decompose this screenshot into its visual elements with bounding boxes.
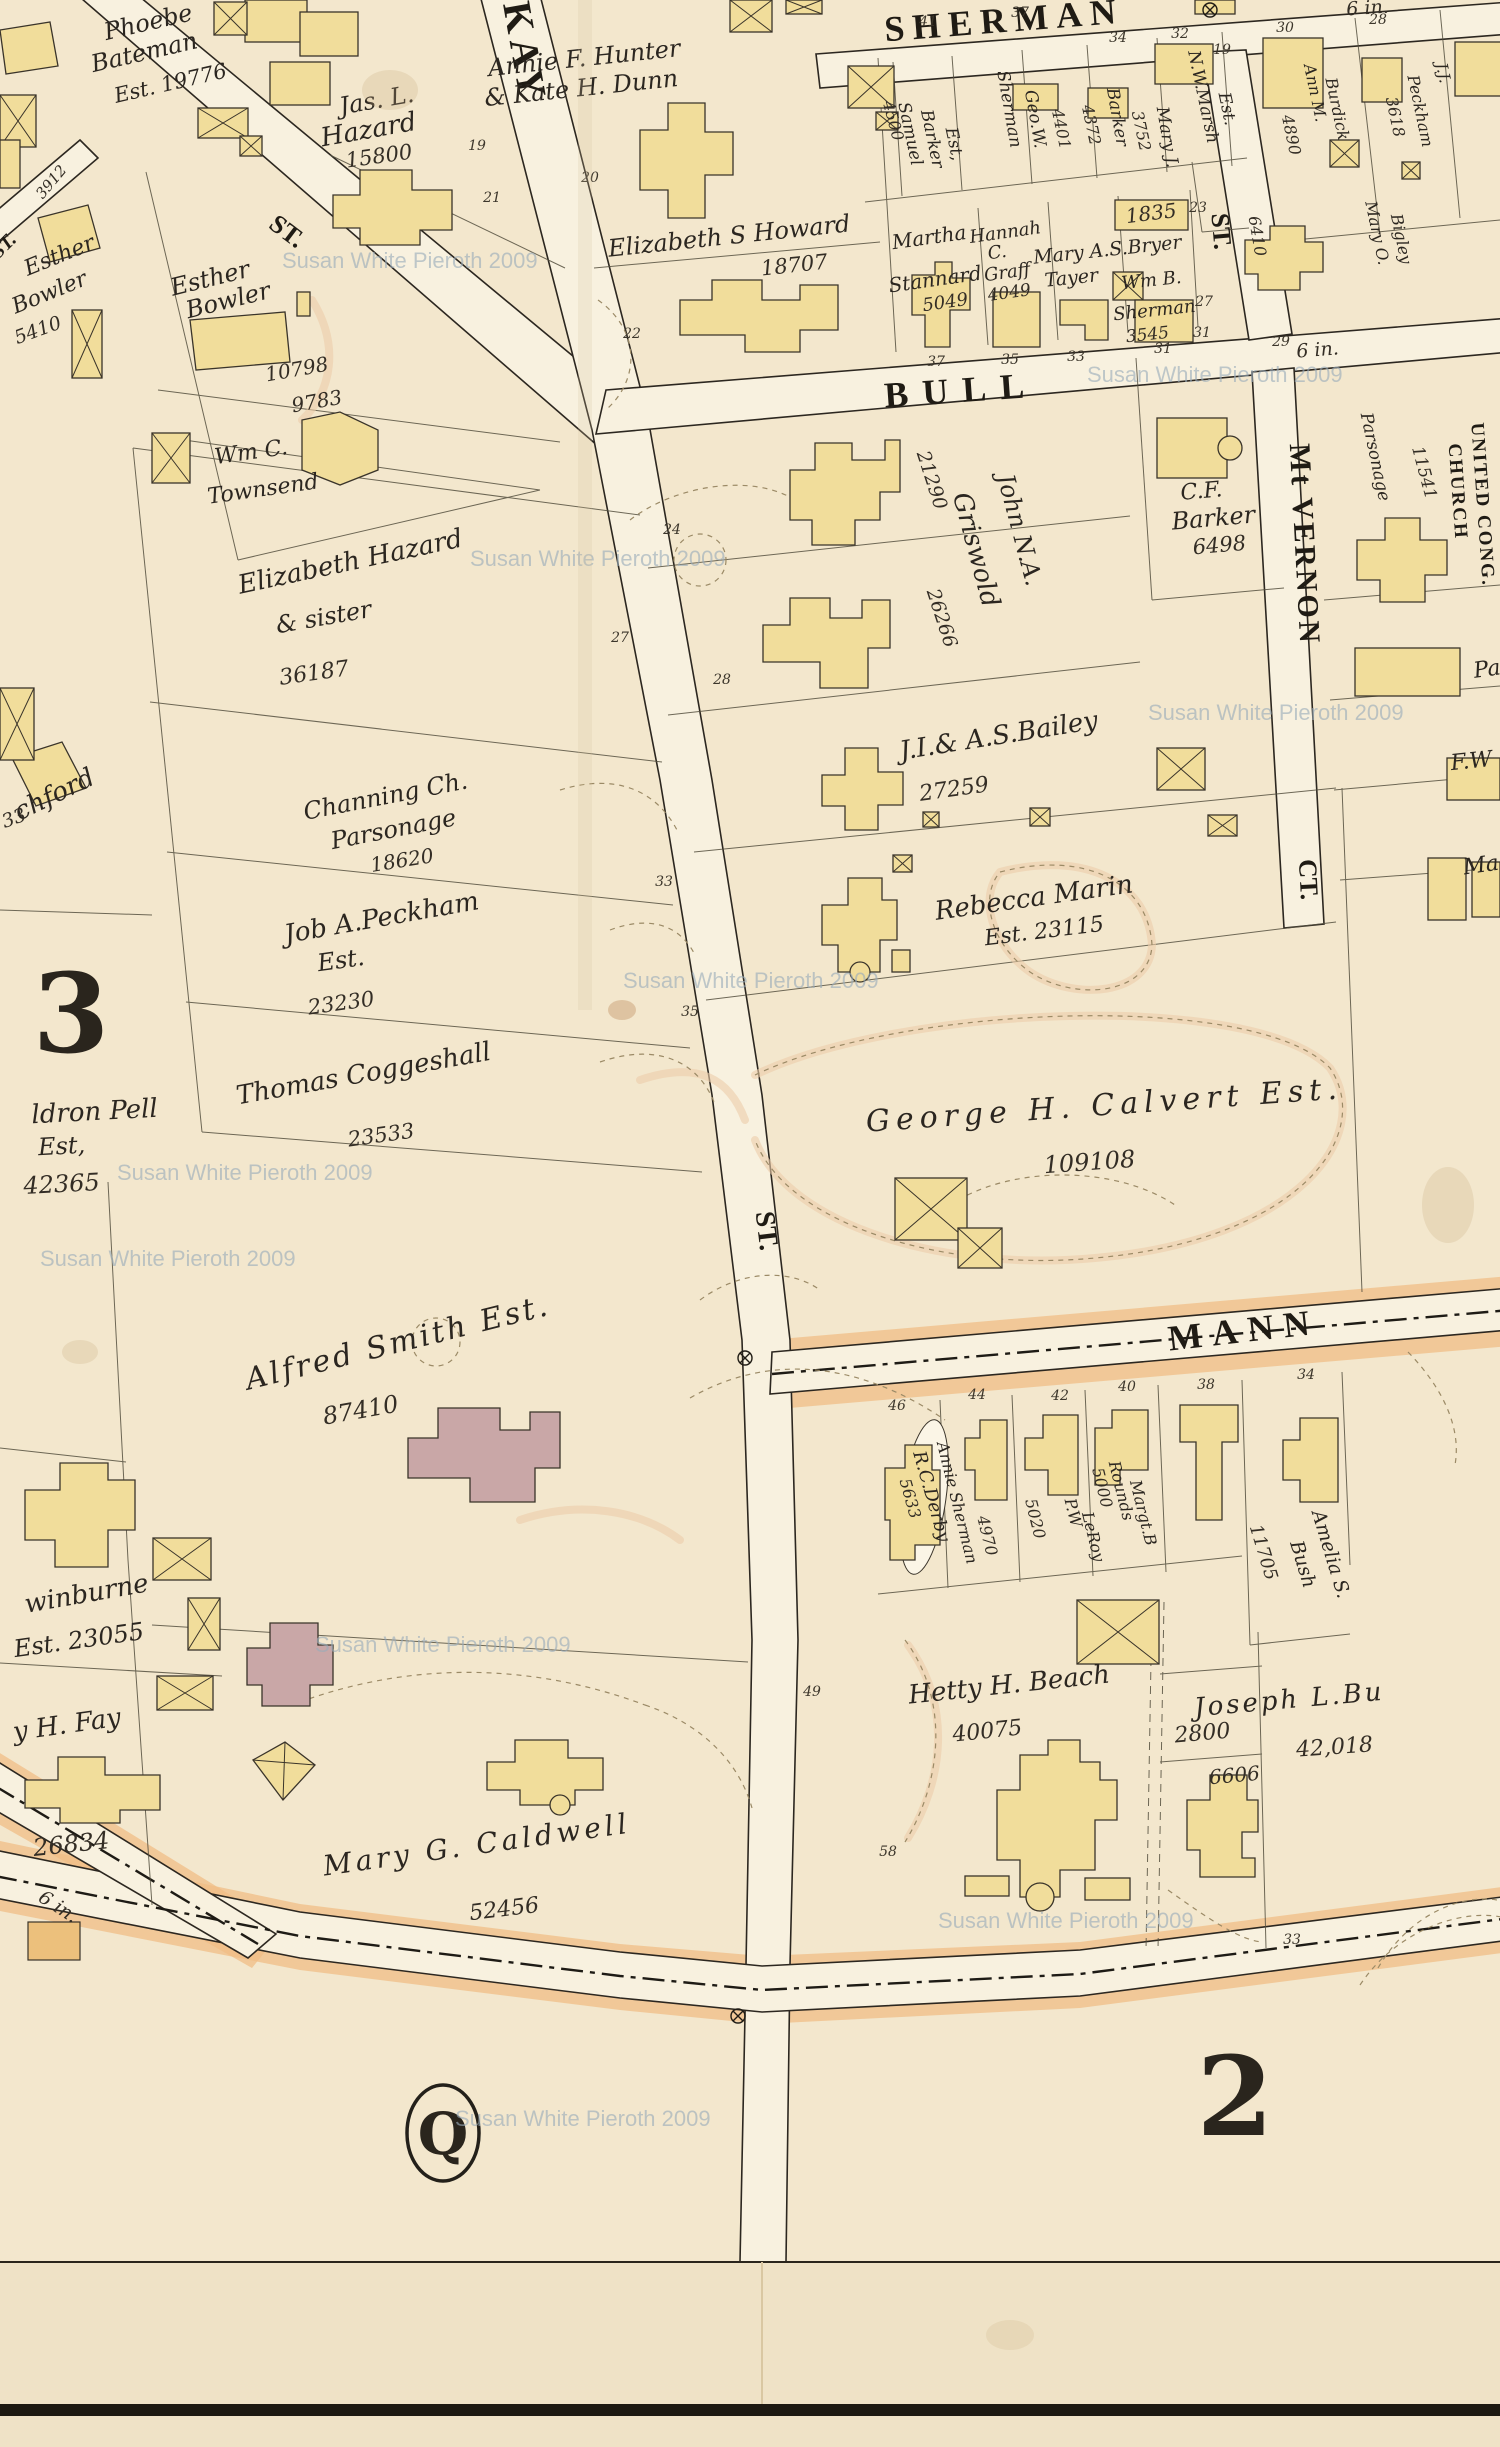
watermark: Susan White Pieroth 2009: [938, 1908, 1194, 1933]
lot-number: 28: [712, 672, 731, 688]
parcel-caldwell: Mary G. Caldwell: [320, 1807, 633, 1883]
building: [1085, 1878, 1130, 1900]
watermark: Susan White Pieroth 2009: [282, 248, 538, 273]
building: [1355, 648, 1460, 696]
parcel-church: CHURCH: [1444, 443, 1472, 541]
parcel-coggeshall: Thomas Coggeshall: [234, 1037, 493, 1111]
tree-line: [755, 1016, 1343, 1261]
lot-number: 34: [1297, 1367, 1315, 1383]
lot-number: 49: [802, 1684, 821, 1700]
parcel-jj-peckham: 3618: [1382, 95, 1409, 139]
edge-fragment: Pa: [1471, 655, 1500, 684]
building: [1195, 0, 1235, 14]
parcel-bailey: J.I.& A.S.Bailey: [893, 706, 1101, 768]
street-label-st-fragment: ST.: [0, 229, 21, 263]
parcel-job-peckham: Est.: [315, 943, 367, 977]
parcel-leroy: LeRoy: [1078, 1509, 1109, 1565]
contour: [950, 1175, 1175, 1205]
border-rule: [0, 2404, 1500, 2416]
parcel-bryer-tayer: Mary A.S.Bryer: [1031, 231, 1184, 269]
cf-barker-house: [1157, 418, 1227, 478]
building: [270, 62, 330, 105]
contour: [610, 923, 695, 955]
parcel-mary-j: 3752: [1128, 109, 1155, 153]
contour: [1408, 1352, 1456, 1465]
parcel-bigley: Mary O.: [1361, 198, 1393, 266]
parcel-burdick: 4890: [1278, 112, 1305, 157]
building: [300, 12, 358, 56]
contour: [645, 1705, 752, 1808]
lot-number: 38: [1197, 1377, 1215, 1393]
leroy-house: [1025, 1415, 1078, 1495]
parcel-amelia-bush: Amelia S.: [1306, 1506, 1354, 1601]
lot-number: 27: [1194, 294, 1213, 310]
hunter-dunn-house: [640, 103, 733, 218]
building: [28, 1922, 80, 1960]
lot-number: 33: [1067, 349, 1085, 365]
lot-number: 41: [918, 14, 937, 30]
bay-window: [550, 1795, 570, 1815]
watermark: Susan White Pieroth 2009: [623, 968, 879, 993]
lot-number: 37: [1011, 5, 1029, 21]
stain: [62, 1340, 98, 1364]
parcel-coggeshall: 23533: [345, 1119, 415, 1152]
watermark: Susan White Pieroth 2009: [455, 2106, 711, 2131]
parcel-howard: 18707: [760, 250, 830, 281]
lot-number: 31: [1193, 325, 1211, 341]
parcel-cf-barker: C.F.: [1179, 477, 1223, 506]
parcel-griswold: 21290: [912, 447, 952, 512]
lot-number: 30: [1276, 20, 1294, 36]
street-label-st-diagonal: ST.: [264, 209, 311, 254]
parcel-parsonage: 11541: [1407, 444, 1440, 501]
bailey-house: [822, 748, 903, 830]
contour: [300, 1672, 645, 1705]
plate-number-3: 3: [33, 949, 110, 1078]
stain: [986, 2320, 1034, 2350]
parcel-townsend: Wm C.: [213, 435, 289, 470]
parcel-smith: Alfred Smith Est.: [239, 1288, 554, 1398]
parcel-griswold: John N.A.: [990, 466, 1048, 589]
building: [892, 950, 910, 972]
bay-window: [1026, 1883, 1054, 1911]
driveway: [908, 1645, 938, 1838]
joseph-bush-house: [1187, 1775, 1258, 1877]
building: [1428, 858, 1466, 920]
parcel-e-hazard: & sister: [274, 595, 376, 640]
parcel-e-hazard: 36187: [278, 656, 351, 690]
edge-fragment: F.W: [1448, 747, 1495, 777]
marin-house: [822, 878, 897, 972]
parcel-graff: C.: [986, 241, 1008, 264]
lot-number: 32: [1171, 26, 1189, 42]
parcel-stannard: Martha: [889, 220, 967, 254]
amelia-bush-house: [1180, 1405, 1238, 1520]
watermark: Susan White Pieroth 2009: [117, 1160, 373, 1185]
parcel-joseph-bush: 6606: [1208, 1761, 1261, 1789]
lot-number: 40: [1117, 1379, 1136, 1395]
stain: [1422, 1167, 1474, 1243]
building: [1283, 1418, 1338, 1502]
parcel-beach: 40075: [950, 1715, 1023, 1747]
parcel-church: UNITED CONG.: [1466, 422, 1498, 587]
lot-number: 37: [927, 354, 945, 370]
map-canvas: SHERMAN BULL KAY ST. ST. ST. Mt VERNON C…: [0, 0, 1500, 2447]
watermark: Susan White Pieroth 2009: [315, 1632, 571, 1657]
building: [245, 0, 307, 42]
edge-fragment: Ma: [1461, 851, 1500, 881]
watermark: Susan White Pieroth 2009: [1148, 700, 1404, 725]
lot-number: 44: [967, 1387, 986, 1403]
street-label-ct: CT.: [1293, 858, 1324, 900]
parcel-joseph-bush: 2800: [1172, 1719, 1231, 1749]
building: [0, 22, 58, 74]
lot-number: 35: [681, 1004, 699, 1020]
parsonage-house: [1357, 518, 1447, 602]
beach-house: [997, 1740, 1117, 1897]
lot-number: 35: [1001, 352, 1019, 368]
bay-window: [1218, 436, 1242, 460]
pipe-label: 6 in.: [1295, 337, 1339, 362]
watermark: Susan White Pieroth 2009: [1087, 362, 1343, 387]
atlas-map-sheet: SHERMAN BULL KAY ST. ST. ST. Mt VERNON C…: [0, 0, 1500, 2447]
parcel-joseph-bush: 42,018: [1294, 1732, 1374, 1762]
lot-number: 58: [879, 1844, 897, 1860]
driveway: [520, 1510, 680, 1540]
swinburne-house: [25, 1463, 135, 1567]
parcel-jj-peckham: Peckham: [1403, 72, 1437, 149]
watermark: Susan White Pieroth 2009: [470, 546, 726, 571]
lot-number: 28: [1368, 12, 1387, 28]
parcel-e-hazard: Elizabeth Hazard: [234, 524, 465, 601]
parcel-wm-sherman: Wm B.: [1120, 267, 1182, 294]
contour: [560, 783, 678, 832]
parcel-pell: Est,: [36, 1131, 86, 1161]
lot-number: 34: [1109, 30, 1127, 46]
lot-number: 33: [655, 874, 673, 890]
parcel-beach: Hetty H. Beach: [906, 1660, 1111, 1711]
parcel-joseph-bush: Joseph L.Bu: [1188, 1677, 1386, 1724]
parcel-caldwell: 52456: [468, 1893, 541, 1926]
stain: [608, 1000, 636, 1020]
building: [297, 292, 310, 316]
lot-number: 27: [610, 630, 629, 646]
alfred-smith-house: [408, 1408, 560, 1502]
parcel-calvert: 109108: [1043, 1145, 1136, 1179]
parcel-job-peckham: Job A.Peckham: [277, 886, 481, 951]
building: [1455, 42, 1500, 96]
scan-crease: [578, 0, 592, 1010]
parcel-townsend: Townsend: [206, 469, 320, 509]
griswold-house-north: [790, 440, 900, 545]
lot-number: 29: [1271, 334, 1290, 350]
plate-number-2: 2: [1197, 2032, 1274, 2161]
tayer-house: [1060, 300, 1108, 340]
lot-number: 21: [482, 190, 501, 206]
building: [0, 140, 20, 188]
lot-number: 19: [468, 138, 486, 154]
parcel-bailey: 27259: [917, 772, 991, 807]
parcel-swinburne: Est. 23055: [11, 1617, 146, 1663]
parcel-fay: y H. Fay: [10, 1703, 123, 1748]
parcel-griswold: Griswold: [946, 489, 1005, 610]
lot-number: 23: [1188, 200, 1207, 216]
parcel-amelia-bush: Bush: [1285, 1537, 1320, 1590]
parcel-smith: 87410: [321, 1390, 401, 1431]
lot-number: 19: [1213, 42, 1231, 58]
building: [965, 1876, 1009, 1896]
parcel-leroy: 5020: [1021, 1497, 1049, 1541]
parcel-parsonage: Parsonage: [1356, 410, 1394, 503]
parcel-cf-barker: 6498: [1192, 531, 1247, 560]
parcel-job-peckham: 23230: [305, 987, 375, 1020]
lot-number: 31: [1154, 341, 1172, 357]
parcel-amelia-bush: 11705: [1245, 1522, 1282, 1583]
parcel-pell: 42365: [22, 1168, 101, 1200]
stain: [362, 70, 418, 110]
parcel-channing: 18620: [369, 843, 436, 877]
parcel-jj-peckham: J.J.: [1431, 58, 1454, 85]
lot-number: 24: [662, 522, 681, 538]
griswold-house-south: [763, 598, 890, 688]
parcel-pell: ldron Pell: [31, 1094, 159, 1131]
lot-number: 42: [1050, 1388, 1069, 1404]
parcel-bryer-tayer: Tayer: [1044, 264, 1101, 292]
watermark: Susan White Pieroth 2009: [40, 1246, 296, 1271]
street-label-kay-st: ST.: [749, 1210, 785, 1253]
parcel-marin: Rebecca Marin: [932, 869, 1135, 927]
lot-number: 33: [1283, 1932, 1301, 1948]
parcel-mary-j: Mary J.: [1152, 104, 1183, 169]
annie-sherman-house: [965, 1420, 1007, 1500]
lot-number: 46: [887, 1398, 906, 1414]
parcel-griswold: 26266: [922, 585, 962, 650]
street-label-mt-vernon-st: ST.: [1205, 212, 1237, 251]
bottom-margin: [0, 2262, 1500, 2447]
parcel-calvert: George H. Calvert Est.: [865, 1071, 1344, 1139]
howard-house: [680, 280, 838, 352]
lot-number: 22: [622, 326, 641, 342]
parcel-geo-sherman: 4401: [1048, 106, 1075, 151]
caldwell-house: [487, 1740, 603, 1805]
